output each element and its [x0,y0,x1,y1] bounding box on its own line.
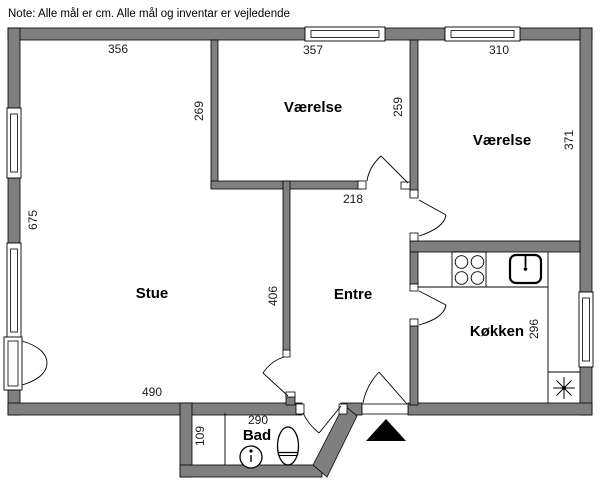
jamb-koekken-door-bottom [410,319,418,326]
dim-entre-left-height: 406 [266,286,280,306]
window-left-lower [7,243,21,338]
jamb-vaerelse2-door-bottom [410,233,418,241]
floor-plan-drawing: Note: Alle mål er cm. Alle mål og invent… [0,0,600,482]
room-label-koekken: Køkken [470,323,524,340]
jamb-bad-door-left [296,404,304,414]
dim-vaerelse1-right-height: 259 [391,97,405,117]
door-swing-koekken [419,291,446,325]
bathroom-wall-diagonal [313,405,357,477]
wall-vaerelse2-koekken [410,241,580,252]
door-swing-stue-passage [263,357,288,396]
note-text: Note: Alle mål er cm. Alle mål og invent… [8,8,290,20]
jamb-vaerelse1-door-left [358,181,366,189]
room-labels: Stue Værelse Værelse Entre Køkken Bad [136,99,531,444]
stove-icon [452,252,486,287]
door-swing-vaerelse1 [367,156,408,183]
wall-stue-entre [283,181,290,351]
dim-vaerelse1-width: 357 [303,43,323,57]
dim-stue-bottom-width: 490 [142,385,162,399]
dim-entre-top-width: 218 [343,192,363,206]
wall-stue-vaerelse1 [211,40,218,188]
windows [7,27,593,367]
jamb-vaerelse1-door-right [401,182,410,189]
door-swing-vaerelse2 [419,200,446,236]
dim-vaerelse2-width: 310 [489,43,509,57]
dim-stue-top-width: 356 [108,42,128,56]
wall-vaerelse1-vaerelse2 [410,40,418,197]
room-label-bad: Bad [243,427,271,444]
interior-walls [211,40,580,405]
window-left-upper [7,108,21,178]
jamb-vaerelse2-door-top [410,190,418,198]
room-label-entre: Entre [334,286,372,303]
floor-plan-page: Note: Alle mål er cm. Alle mål og invent… [0,0,600,482]
dim-koekken-height: 296 [527,319,541,339]
window-right-koekken [579,292,593,367]
sink-icon [510,255,541,283]
room-label-stue: Stue [136,285,169,302]
entrance-door-threshold [362,404,408,414]
dim-stue-left-height: 675 [26,210,40,230]
balcony-door [4,337,47,390]
window-top-vaerelse2 [445,27,520,41]
jamb-stue-passage-top [283,350,290,357]
balcony-door-leaf [4,337,22,390]
dim-vaerelse1-left-height: 269 [192,101,206,121]
freezer-snowflake-icon [553,377,575,399]
wall-entre-koekken-upper [410,252,418,284]
dim-bad-left-height: 109 [193,426,207,446]
washbasin-icon [240,446,262,468]
wall-entre-koekken-lower [410,326,418,405]
balcony-door-swing [22,341,47,385]
room-label-vaerelse2: Værelse [473,132,531,149]
jamb-koekken-door-top [410,284,418,291]
jamb-bad-door-right [339,404,347,414]
outer-wall-bottom-right [408,403,592,415]
toilet-icon [278,427,299,465]
door-swing-entrance [363,372,407,404]
window-top-vaerelse1 [305,27,385,41]
jamb-stue-passage-bottom [286,392,295,397]
dim-vaerelse2-height: 371 [562,130,576,150]
dim-bad-width: 290 [248,413,268,427]
entrance-arrow-icon [366,419,406,441]
room-label-vaerelse1: Værelse [284,99,342,116]
